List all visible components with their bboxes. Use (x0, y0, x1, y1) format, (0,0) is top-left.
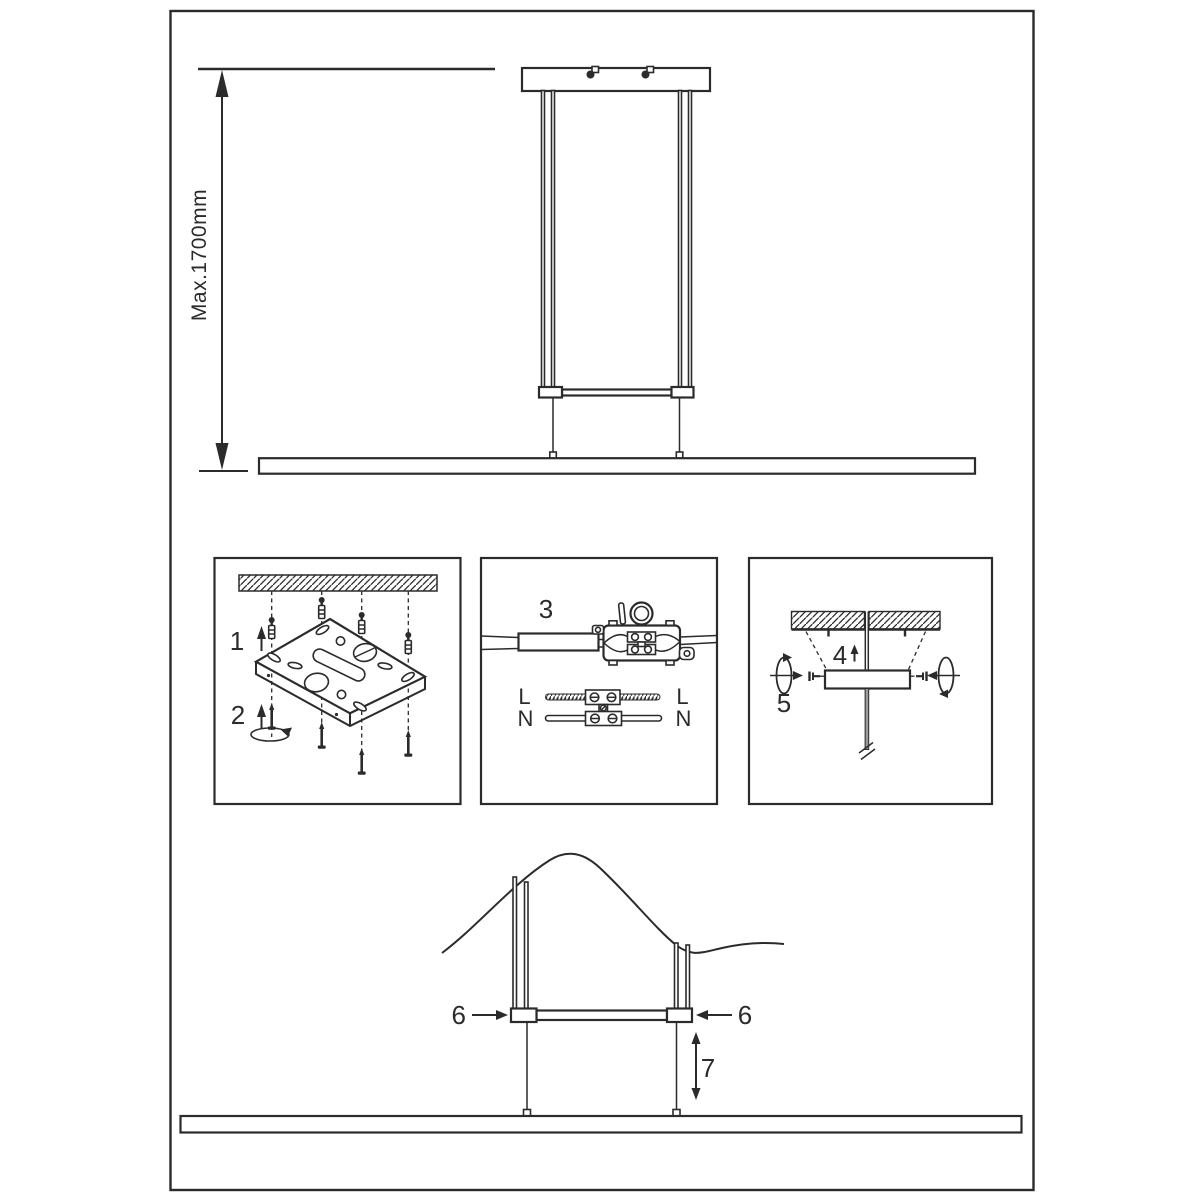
step1-label: 1 (230, 626, 244, 656)
bar-end-block (511, 1009, 537, 1023)
terminal-center-screw (599, 705, 608, 712)
step-panel-wiring: 3 (481, 558, 717, 804)
canopy (825, 671, 910, 689)
step7-label: 7 (701, 1053, 715, 1083)
ceiling-canopy (522, 67, 710, 92)
wall-anchor-icon (359, 612, 365, 634)
pendant-cable (865, 689, 869, 750)
step-panel-plate-mounting: 1 2 (215, 558, 461, 804)
cable-sleeve (519, 634, 599, 651)
wall-anchor-icon (269, 617, 275, 639)
wall-anchor-icon (319, 597, 325, 619)
panel-border (481, 558, 717, 804)
upper-cross-bar (511, 1009, 692, 1023)
neutral-label-right: N (676, 706, 692, 731)
bar-end-block (667, 1009, 692, 1023)
wall-anchor-icon (405, 632, 411, 654)
lamp-bar (259, 458, 975, 474)
ceiling-hatch (792, 612, 865, 630)
max-height-label: Max.1700mm (188, 189, 211, 321)
step2-label: 2 (231, 700, 245, 730)
step6-label-left: 6 (451, 1000, 465, 1030)
lamp-bar (181, 1116, 1022, 1133)
upper-cross-bar (539, 387, 694, 398)
step-panel-canopy: 4 5 (749, 558, 992, 804)
diagram-canvas: Max.1700mm (0, 0, 1200, 1200)
instruction-sheet: Max.1700mm (0, 0, 1200, 1200)
neutral-label-left: N (518, 706, 534, 731)
step3-label: 3 (539, 594, 553, 624)
ceiling-hatch (869, 612, 940, 630)
step4-label: 4 (833, 640, 847, 670)
ceiling-hatch (239, 575, 437, 591)
step5-label: 5 (777, 688, 791, 718)
step6-label-right: 6 (738, 1000, 752, 1030)
